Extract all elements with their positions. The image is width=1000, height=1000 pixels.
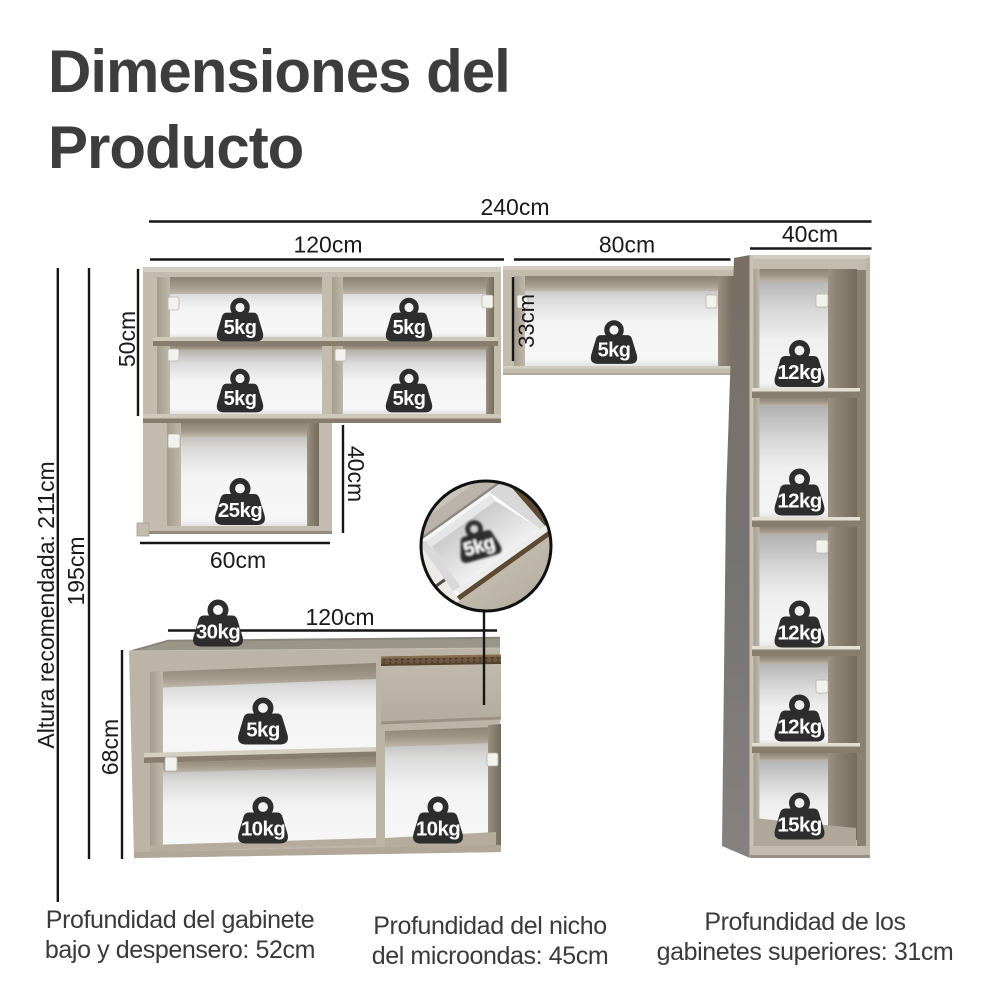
svg-text:5kg: 5kg bbox=[224, 388, 257, 410]
svg-text:50cm: 50cm bbox=[114, 311, 140, 367]
svg-text:Altura recomendada: 211cm: Altura recomendada: 211cm bbox=[33, 461, 59, 748]
svg-text:40cm: 40cm bbox=[343, 446, 369, 502]
svg-text:195cm: 195cm bbox=[63, 536, 89, 605]
svg-text:240cm: 240cm bbox=[480, 194, 549, 220]
svg-text:bajo y despensero: 52cm: bajo y despensero: 52cm bbox=[45, 936, 315, 964]
svg-text:del microondas: 45cm: del microondas: 45cm bbox=[372, 942, 609, 970]
svg-text:5kg: 5kg bbox=[393, 317, 426, 339]
svg-text:5kg: 5kg bbox=[598, 339, 631, 361]
svg-text:12kg: 12kg bbox=[777, 361, 821, 384]
svg-text:120cm: 120cm bbox=[293, 232, 362, 258]
svg-text:25kg: 25kg bbox=[218, 499, 262, 522]
svg-text:12kg: 12kg bbox=[777, 716, 821, 739]
svg-text:Profundidad de los: Profundidad de los bbox=[704, 908, 905, 936]
svg-text:gabinetes superiores: 31cm: gabinetes superiores: 31cm bbox=[657, 938, 954, 966]
svg-text:68cm: 68cm bbox=[97, 719, 123, 775]
svg-text:10kg: 10kg bbox=[241, 818, 285, 841]
svg-text:Producto: Producto bbox=[48, 114, 303, 181]
svg-text:40cm: 40cm bbox=[782, 221, 838, 247]
svg-text:60cm: 60cm bbox=[210, 547, 266, 573]
svg-text:15kg: 15kg bbox=[777, 814, 821, 837]
svg-text:12kg: 12kg bbox=[777, 490, 821, 513]
svg-text:Dimensiones del: Dimensiones del bbox=[48, 38, 510, 105]
svg-text:120cm: 120cm bbox=[305, 604, 374, 630]
svg-text:30kg: 30kg bbox=[196, 621, 240, 644]
svg-text:12kg: 12kg bbox=[777, 622, 821, 645]
svg-text:5kg: 5kg bbox=[224, 317, 257, 339]
svg-text:10kg: 10kg bbox=[416, 818, 460, 841]
svg-text:Profundidad del gabinete: Profundidad del gabinete bbox=[46, 906, 314, 934]
svg-text:5kg: 5kg bbox=[393, 388, 426, 410]
svg-text:5kg: 5kg bbox=[246, 719, 280, 742]
svg-text:80cm: 80cm bbox=[599, 232, 655, 258]
svg-text:Profundidad del nicho: Profundidad del nicho bbox=[373, 912, 606, 940]
svg-text:33cm: 33cm bbox=[514, 294, 539, 348]
